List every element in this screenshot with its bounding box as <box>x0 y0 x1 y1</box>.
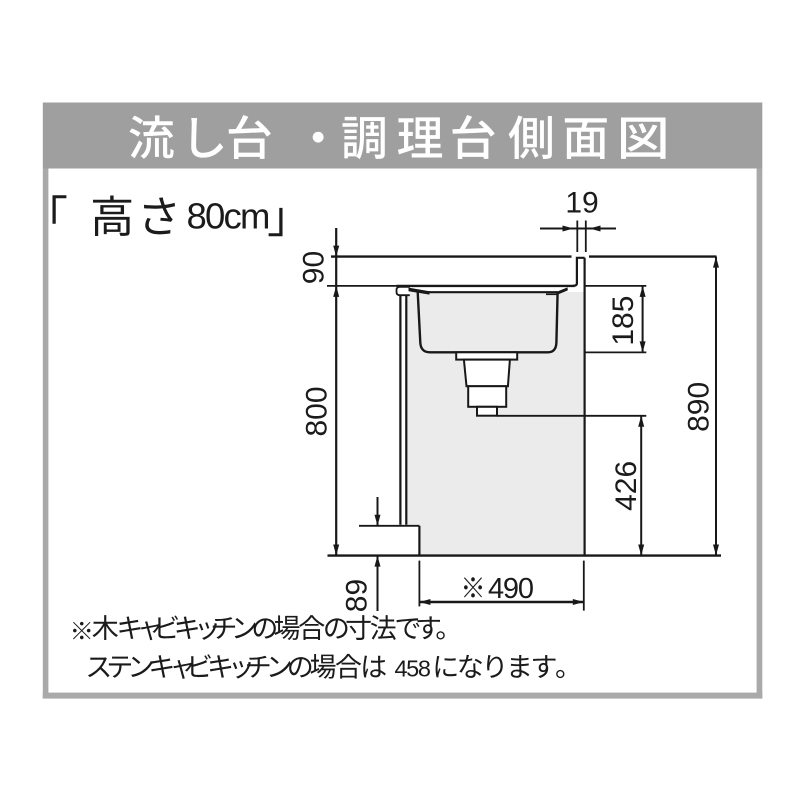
svg-text:90: 90 <box>298 251 331 284</box>
svg-text:458: 458 <box>395 656 431 682</box>
svg-text:185: 185 <box>607 296 640 346</box>
svg-text:80cm: 80cm <box>187 196 269 237</box>
svg-text:890: 890 <box>683 382 716 432</box>
svg-text:426: 426 <box>610 461 643 511</box>
svg-text:490: 490 <box>488 573 533 605</box>
svg-text:800: 800 <box>301 386 334 436</box>
svg-text:19: 19 <box>565 187 598 220</box>
svg-text:89: 89 <box>341 579 374 612</box>
